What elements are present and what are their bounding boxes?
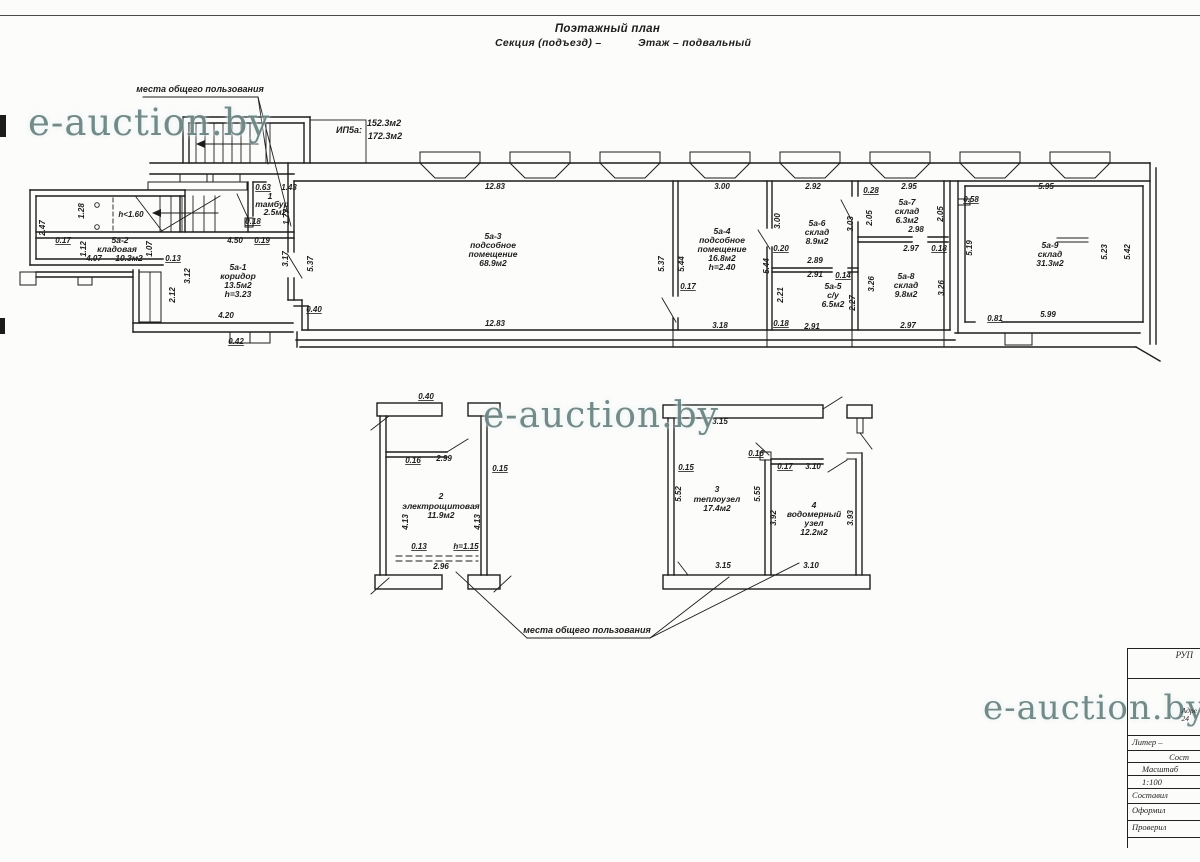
note-label: места общего пользования	[136, 84, 264, 94]
dimension-label: 0.19	[254, 236, 270, 245]
dimension-label: 2.97	[902, 244, 919, 253]
dimension-label: 2.05	[936, 206, 945, 223]
dimension-label: 4.13	[401, 514, 410, 531]
dimension-label: 0.16	[405, 456, 421, 465]
room-label: 9.8м2	[895, 289, 918, 299]
scale-label: Масштаб	[1142, 764, 1178, 774]
room-label: 6.3м2	[896, 215, 919, 225]
dimension-label: 5.37	[306, 256, 315, 272]
room-label: 10.3м2	[115, 253, 143, 263]
dimension-label: 3.92	[769, 510, 778, 526]
dimension-label: h<1.60	[118, 210, 144, 219]
dimension-label: 0.13	[165, 254, 181, 263]
dimension-label: 3.10	[805, 462, 821, 471]
dimension-label: 2.96	[432, 562, 449, 571]
dimension-label: 12.83	[485, 319, 506, 328]
dimension-label: 0.18	[245, 217, 261, 226]
plan-labels: места общего пользованияИП5а:152.3м2172.…	[38, 84, 1132, 635]
title-block-oformil-row: Оформил	[1128, 804, 1200, 821]
dimension-label: 3.00	[773, 213, 782, 229]
dimension-label: 0.42	[228, 337, 244, 346]
note-label: ИП5а:	[336, 125, 362, 135]
proveril-label: Проверил	[1132, 822, 1166, 832]
room-label: 68.9м2	[479, 258, 507, 268]
oformil-label: Оформил	[1132, 805, 1166, 815]
room-label: 2	[438, 491, 444, 501]
dimension-label: 3.15	[715, 561, 731, 570]
dimension-label: 0.15	[678, 463, 694, 472]
note-label: места общего пользования	[523, 625, 651, 635]
scanned-floor-plan-page: { "header": { "title": "Поэтажный план",…	[0, 0, 1200, 848]
corridor-walls	[133, 270, 297, 347]
dimension-label: 4.50	[226, 236, 243, 245]
dimension-label: 0.14	[835, 271, 851, 280]
dimension-label: 0.28	[863, 186, 879, 195]
dimension-label: 2.91	[803, 322, 820, 331]
room-label: 8.9м2	[806, 236, 829, 246]
title-block-proveril-row: Проверил	[1128, 821, 1200, 838]
dimension-label: 2.21	[776, 287, 785, 304]
dimension-label: 5.42	[1123, 244, 1132, 260]
dimension-label: 3.26	[867, 276, 876, 292]
dimension-label: 0.15	[492, 464, 508, 473]
leader-lines	[143, 97, 799, 638]
dimension-label: 2.27	[848, 295, 857, 312]
room-label: 3	[715, 484, 720, 494]
dimension-label: 2.47	[38, 220, 47, 237]
dimension-label: 2.99	[435, 454, 452, 463]
dimension-label: 2.97	[899, 321, 916, 330]
title-block-sost-row: Сост	[1128, 751, 1200, 763]
main-building-top-wall	[150, 152, 1150, 181]
lower-stair-flight	[136, 196, 220, 232]
watermark: e-auction.by	[28, 101, 270, 144]
title-block-address-row: Адре 24	[1128, 679, 1200, 736]
dimension-label: 1.28	[77, 203, 86, 219]
dimension-label: 5.44	[677, 256, 686, 272]
note-label: 152.3м2	[367, 118, 401, 128]
main-building-right-wall	[1150, 163, 1156, 344]
dimension-label: 1.77	[282, 209, 291, 225]
scale-value: 1:100	[1142, 777, 1162, 787]
room-label: 31.3м2	[1036, 258, 1064, 268]
dimension-label: 2.92	[804, 182, 821, 191]
dimension-label: 2.12	[168, 287, 177, 304]
title-block: РУП Адре 24 Литер – Сост Масштаб 1:100 С…	[1127, 648, 1200, 848]
title-block-liter-row: Литер –	[1128, 736, 1200, 751]
dimension-label: 0.18	[773, 319, 789, 328]
dimension-label: 0.58	[963, 195, 979, 204]
room-label: 17.4м2	[703, 503, 731, 513]
sost-label: Сост	[1169, 752, 1189, 762]
dimension-label: 2.05	[865, 210, 874, 227]
room-label: h=2.40	[709, 262, 736, 272]
liter-label: Литер –	[1132, 737, 1163, 747]
room-label: 12.2м2	[800, 527, 828, 537]
dimension-label: 12.83	[485, 182, 506, 191]
title-block-org-row: РУП	[1128, 649, 1200, 679]
dimension-label: 0.40	[306, 305, 322, 314]
dimension-label: 2.89	[806, 256, 823, 265]
dimension-label: 5.99	[1040, 310, 1056, 319]
dimension-label: 3.93	[846, 510, 855, 526]
dimension-label: 1.07	[145, 241, 154, 257]
dimension-label: 2.98	[907, 225, 924, 234]
dimension-label: 0.17	[55, 236, 71, 245]
title-block-sostavil-row: Составил	[1128, 789, 1200, 804]
dimension-label: 3.10	[803, 561, 819, 570]
title-block-scale-value-row: 1:100	[1128, 776, 1200, 789]
note-label: 172.3м2	[368, 131, 402, 141]
dimension-label: 4.13	[473, 514, 482, 531]
room-label: h=3.23	[225, 289, 252, 299]
dimension-label: h=1.15	[453, 542, 479, 551]
sostavil-label: Составил	[1132, 790, 1168, 800]
room-label: 11.9м2	[428, 510, 455, 520]
dimension-label: 3.18	[712, 321, 728, 330]
dimension-label: 4.20	[217, 311, 234, 320]
dimension-label: 2.91	[806, 270, 823, 279]
dimension-label: 0.40	[418, 392, 434, 401]
title-block-scale-row: Масштаб	[1128, 763, 1200, 776]
dimension-label: 5.19	[965, 240, 974, 256]
dimension-label: 3.03	[846, 216, 855, 232]
dimension-label: 3.12	[183, 268, 192, 284]
room-label: 6.5м2	[822, 299, 845, 309]
dimension-label: 0.81	[987, 314, 1003, 323]
dimension-label: 0.17	[777, 462, 793, 471]
dimension-label: 5.55	[753, 486, 762, 502]
stair-direction-arrow	[152, 209, 161, 217]
dimension-label: 2.95	[900, 182, 917, 191]
dimension-label: 0.18	[931, 244, 947, 253]
watermark: e-auction.by	[483, 395, 719, 436]
dimension-label: 0.17	[680, 282, 696, 291]
dimension-label: 4.07	[85, 254, 102, 263]
dimension-label: 1.43	[281, 183, 297, 192]
dimension-label: 5.37	[657, 256, 666, 272]
dimension-label: 5.95	[1038, 182, 1054, 191]
dimension-label: 0.13	[411, 542, 427, 551]
dimension-label: 5.23	[1100, 244, 1109, 260]
dimension-label: 5.44	[762, 258, 771, 274]
address: Адре 24	[1182, 707, 1197, 723]
dimension-label: 0.16	[748, 449, 764, 458]
dimension-label: 3.00	[714, 182, 730, 191]
dimension-label: 5.52	[674, 486, 683, 502]
title-block-empty-row	[1128, 838, 1200, 862]
dimension-label: 0.20	[773, 244, 789, 253]
dimension-label: 3.26	[937, 280, 946, 296]
org-name: РУП	[1176, 650, 1193, 660]
dimension-label: 3.17	[281, 251, 290, 267]
